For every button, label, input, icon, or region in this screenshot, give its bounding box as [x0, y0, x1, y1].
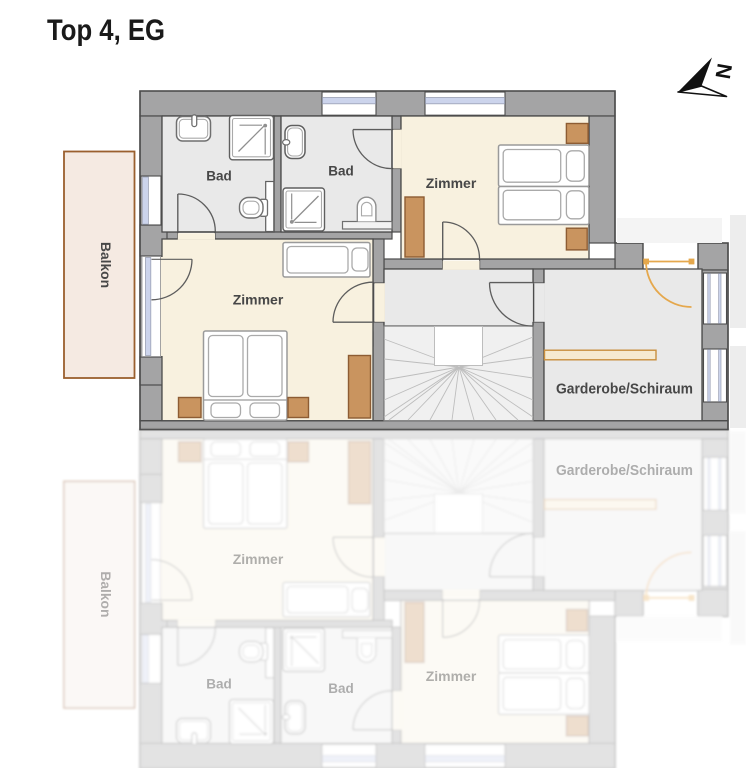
svg-text:Garderobe/Schiraum: Garderobe/Schiraum	[556, 382, 693, 398]
svg-text:Balkon: Balkon	[98, 571, 114, 617]
svg-text:Zimmer: Zimmer	[426, 668, 477, 684]
svg-text:Zimmer: Zimmer	[233, 551, 284, 567]
svg-text:Bad: Bad	[328, 164, 354, 179]
svg-text:Bad: Bad	[328, 681, 354, 696]
svg-text:Zimmer: Zimmer	[426, 175, 477, 191]
svg-text:Garderobe/Schiraum: Garderobe/Schiraum	[556, 463, 693, 479]
svg-text:N: N	[710, 62, 735, 81]
svg-text:Balkon: Balkon	[98, 242, 114, 288]
svg-text:Bad: Bad	[206, 169, 232, 184]
svg-text:Top 4, EG: Top 4, EG	[47, 14, 165, 47]
svg-text:Bad: Bad	[206, 677, 232, 692]
svg-text:Zimmer: Zimmer	[233, 292, 284, 308]
